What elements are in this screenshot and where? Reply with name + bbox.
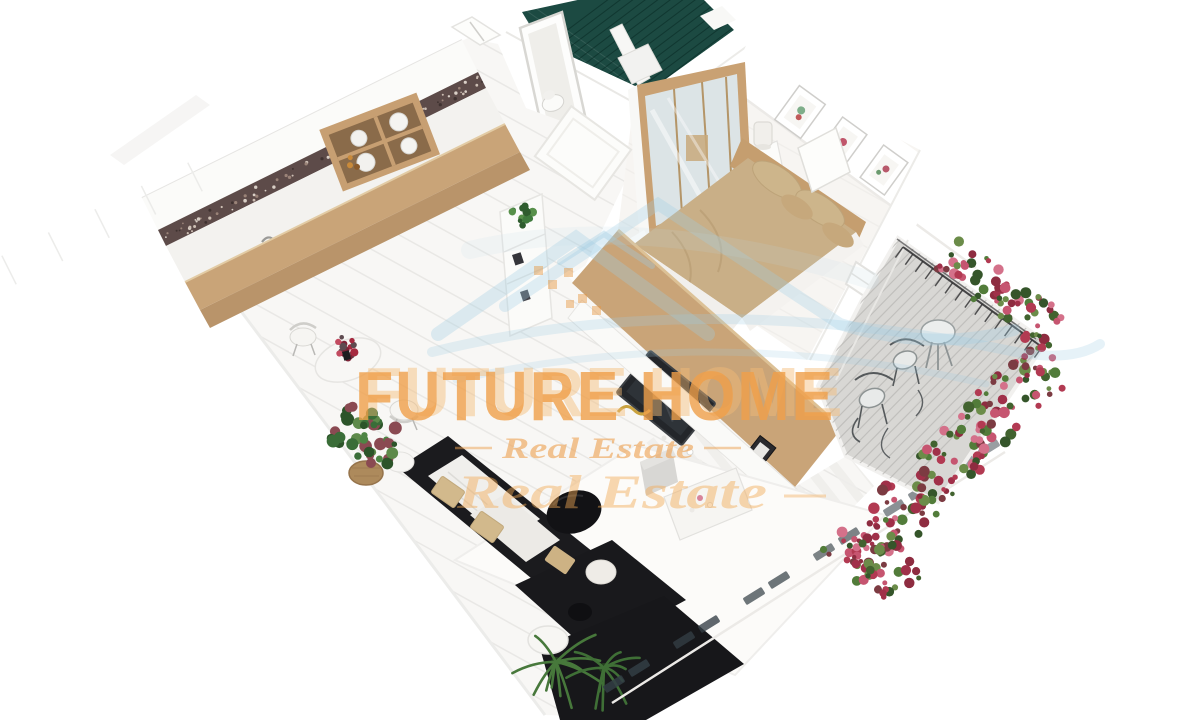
- mosaic-dot: [191, 230, 193, 232]
- flower: [919, 466, 930, 477]
- mosaic-dot: [475, 84, 478, 87]
- tagline-small: Real Estate: [501, 432, 694, 465]
- flower: [977, 421, 985, 429]
- flower: [841, 538, 846, 543]
- mosaic-dot: [193, 225, 196, 228]
- flower: [984, 391, 989, 396]
- mosaic-dot: [265, 190, 267, 192]
- flower: [980, 428, 985, 433]
- flower: [912, 567, 920, 575]
- mosaic-dot: [255, 195, 258, 198]
- flower: [933, 511, 940, 518]
- flower: [971, 296, 977, 302]
- flower: [922, 445, 932, 455]
- flower: [959, 464, 968, 473]
- leaf: [327, 435, 340, 448]
- flower: [990, 408, 1000, 418]
- mosaic-dot: [166, 232, 168, 234]
- flower: [882, 580, 887, 585]
- flower: [881, 562, 887, 568]
- flower: [904, 578, 914, 588]
- mosaic-dot: [165, 236, 167, 238]
- flower: [339, 343, 347, 351]
- flower: [872, 533, 880, 541]
- leaf: [519, 222, 526, 229]
- floor-plan-stage: FUTURE HOME FUTURE HOME Real Estate Real…: [0, 0, 1200, 720]
- mosaic-dot: [442, 94, 444, 96]
- flower: [916, 576, 921, 581]
- mosaic-dot: [327, 156, 330, 159]
- flower: [992, 374, 997, 379]
- flower: [1046, 342, 1053, 349]
- flower: [998, 407, 1009, 418]
- tagline-large: Real Estate: [456, 466, 767, 519]
- flower: [883, 517, 889, 523]
- flower: [1035, 403, 1041, 409]
- flower: [349, 338, 354, 343]
- flower: [987, 401, 993, 407]
- mosaic-dot: [182, 223, 184, 225]
- flower: [1035, 294, 1041, 300]
- flower: [847, 543, 853, 549]
- flower: [1048, 301, 1055, 308]
- flower: [1008, 299, 1016, 307]
- flower: [987, 419, 996, 428]
- flower: [868, 503, 879, 514]
- mosaic-dot: [454, 91, 457, 94]
- flower: [873, 516, 880, 523]
- flower: [1020, 287, 1031, 298]
- flower: [1026, 303, 1036, 313]
- flower: [1035, 323, 1040, 328]
- mosaic-dot: [285, 174, 288, 177]
- flower: [917, 493, 923, 499]
- leaf: [354, 452, 361, 459]
- flower: [879, 589, 886, 596]
- flower: [998, 313, 1004, 319]
- flower: [963, 401, 974, 412]
- flower: [1020, 333, 1030, 343]
- flower: [1022, 362, 1030, 370]
- flower: [965, 414, 971, 420]
- flower: [941, 487, 946, 492]
- mosaic-dot: [253, 194, 256, 197]
- flower: [951, 458, 958, 465]
- mosaic-dot: [292, 175, 294, 177]
- flower: [1004, 314, 1013, 323]
- plant-basket: [349, 461, 383, 485]
- leaf: [386, 447, 398, 459]
- flower: [1016, 377, 1023, 384]
- mosaic-dot: [464, 81, 467, 84]
- mosaic-dot: [448, 95, 450, 97]
- mosaic-dot: [221, 206, 223, 208]
- mosaic-dot: [196, 220, 198, 222]
- flower: [919, 517, 929, 527]
- flower: [950, 492, 955, 497]
- flower: [937, 263, 942, 268]
- flower: [958, 413, 965, 420]
- leaf: [392, 441, 398, 447]
- flower: [1000, 382, 1008, 390]
- flower: [866, 566, 875, 575]
- flower: [997, 295, 1003, 301]
- flower: [957, 425, 966, 434]
- leaf: [526, 215, 533, 222]
- mosaic-dot: [462, 93, 465, 96]
- mosaic-dot: [437, 101, 439, 103]
- flower: [1047, 386, 1052, 391]
- flower: [852, 560, 861, 569]
- leaf: [521, 203, 528, 210]
- mosaic-dot: [458, 87, 461, 90]
- flower: [939, 495, 946, 502]
- flower: [952, 475, 957, 480]
- mosaic-dot: [179, 230, 181, 232]
- flower: [1050, 367, 1061, 378]
- flower: [910, 503, 921, 514]
- flower: [874, 544, 885, 555]
- flower: [979, 454, 985, 460]
- flower: [865, 573, 870, 578]
- flower: [915, 530, 923, 538]
- flower: [917, 483, 926, 492]
- mosaic-dot: [476, 77, 478, 79]
- flower: [1012, 423, 1021, 432]
- flower: [930, 441, 937, 448]
- flower: [897, 515, 908, 526]
- flower: [1000, 282, 1011, 293]
- mosaic-dot: [197, 217, 201, 221]
- mosaic-dot: [187, 232, 189, 234]
- flower: [970, 275, 980, 285]
- flower: [1003, 296, 1009, 302]
- flower: [874, 523, 880, 529]
- flower: [851, 536, 857, 542]
- flower: [961, 262, 969, 270]
- flower: [993, 264, 1003, 274]
- mosaic-dot: [234, 201, 237, 204]
- flower: [1011, 289, 1021, 299]
- flower: [1032, 391, 1040, 399]
- mosaic-dot: [188, 226, 191, 229]
- flower: [934, 476, 944, 486]
- flower: [1003, 306, 1012, 315]
- mosaic-dot: [231, 201, 234, 204]
- mosaic-dot: [244, 194, 247, 197]
- flower: [900, 504, 906, 510]
- leaf: [376, 456, 383, 463]
- mosaic-dot: [454, 97, 457, 100]
- mosaic-dot: [204, 221, 207, 224]
- flower: [954, 271, 962, 279]
- flower: [339, 335, 344, 340]
- flower: [968, 250, 976, 258]
- flower: [1024, 373, 1029, 378]
- flower: [979, 285, 989, 295]
- mosaic-dot: [254, 186, 257, 189]
- mosaic-dot: [320, 157, 323, 160]
- flower: [990, 379, 996, 385]
- flower: [1053, 318, 1060, 325]
- flower: [1059, 385, 1066, 392]
- flower: [336, 350, 342, 356]
- mosaic-dot: [424, 107, 427, 110]
- flower: [949, 252, 954, 257]
- flower: [946, 431, 953, 438]
- flower: [970, 462, 978, 470]
- flower: [885, 500, 890, 505]
- black-pillow: [568, 603, 592, 621]
- mosaic-dot: [232, 209, 234, 211]
- flower: [844, 557, 851, 564]
- mosaic-dot: [276, 178, 279, 181]
- mosaic-dot: [272, 185, 275, 188]
- leaf: [381, 458, 393, 470]
- flower: [859, 540, 867, 548]
- mosaic-dot: [292, 168, 294, 170]
- flower: [826, 552, 831, 557]
- mosaic-dot: [208, 209, 211, 212]
- flower: [837, 527, 848, 538]
- flower: [820, 546, 827, 553]
- mosaic-dot: [253, 199, 256, 202]
- mosaic-dot: [288, 176, 291, 179]
- floor-plan-render: FUTURE HOME FUTURE HOME Real Estate Real…: [0, 0, 1200, 720]
- knit-pillow: [586, 560, 616, 584]
- flower: [986, 258, 991, 263]
- mosaic-dot: [481, 81, 483, 83]
- flower: [905, 557, 914, 566]
- flower: [954, 236, 964, 246]
- flower: [971, 435, 979, 443]
- flower: [975, 389, 982, 396]
- flower: [877, 485, 888, 496]
- flower: [891, 497, 897, 503]
- mosaic-dot: [216, 212, 219, 215]
- leaf: [346, 438, 358, 450]
- mosaic-dot: [464, 90, 467, 93]
- leaf: [366, 458, 376, 468]
- mosaic-dot: [180, 227, 182, 229]
- flower: [1008, 360, 1018, 370]
- flower: [888, 541, 897, 550]
- flower: [1000, 437, 1011, 448]
- mosaic-dot: [176, 230, 178, 232]
- mosaic-dot: [305, 162, 308, 165]
- mosaic-dot: [439, 103, 442, 106]
- flower: [933, 448, 941, 456]
- leaf: [360, 435, 369, 444]
- flower: [979, 443, 990, 454]
- flower: [1022, 395, 1030, 403]
- leaf: [384, 438, 391, 445]
- flower: [1037, 334, 1042, 339]
- flower: [1036, 367, 1045, 376]
- leaf: [364, 447, 375, 458]
- brand-text: FUTURE HOME: [355, 357, 835, 435]
- mosaic-dot: [442, 99, 444, 101]
- flower: [335, 339, 341, 345]
- flower: [998, 395, 1008, 405]
- flower: [904, 570, 910, 576]
- mosaic-dot: [208, 217, 211, 220]
- mosaic-dot: [460, 92, 462, 94]
- flower: [943, 266, 950, 273]
- flower: [1002, 375, 1009, 382]
- mosaic-dot: [243, 199, 247, 203]
- flower: [1024, 314, 1030, 320]
- flower: [886, 532, 895, 541]
- table-lamp: [754, 122, 772, 146]
- leaf: [509, 208, 516, 215]
- flower: [867, 520, 873, 526]
- flower: [1015, 301, 1021, 307]
- flower: [937, 455, 946, 464]
- flower: [1047, 391, 1053, 397]
- flower: [954, 262, 961, 269]
